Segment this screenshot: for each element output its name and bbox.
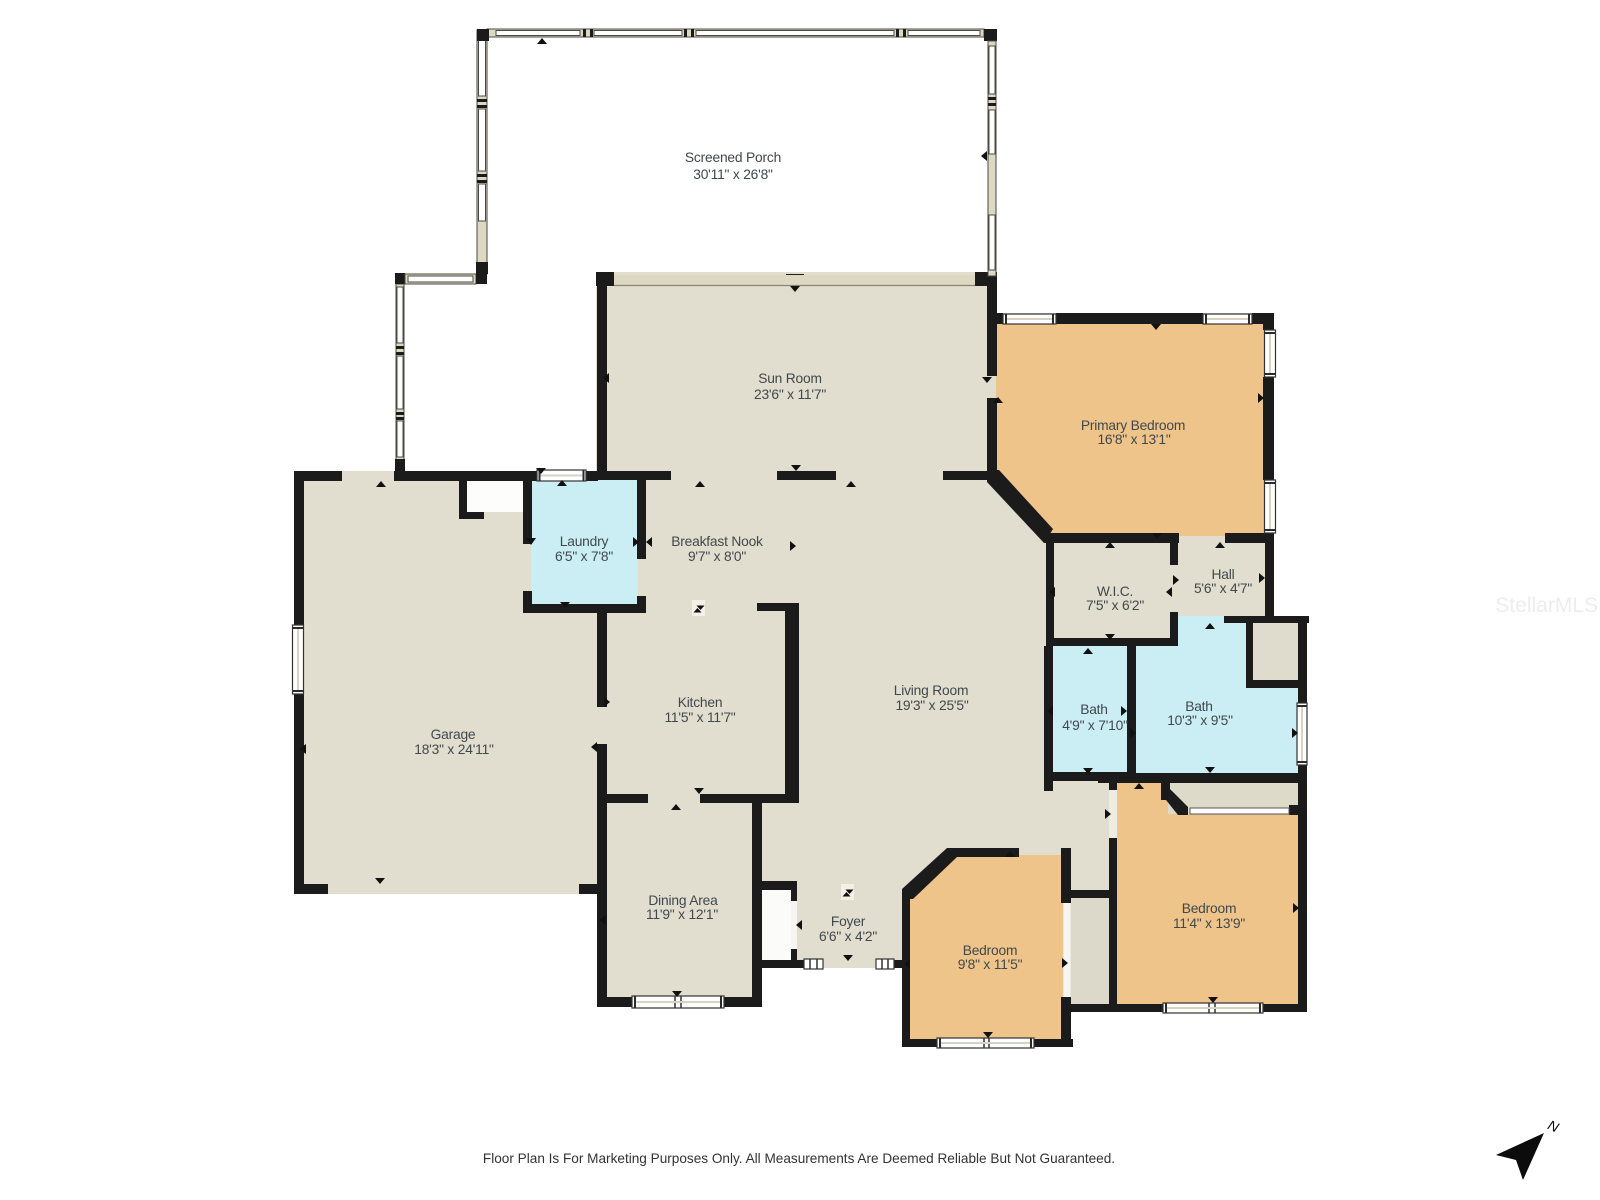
svg-text:23'6" x 11'7": 23'6" x 11'7" [754,387,826,402]
svg-text:Bath: Bath [1185,699,1213,714]
svg-text:Bedroom: Bedroom [963,943,1018,958]
svg-text:18'3" x 24'11": 18'3" x 24'11" [414,742,494,757]
svg-text:Living Room: Living Room [894,683,969,698]
svg-text:Breakfast Nook: Breakfast Nook [671,534,763,549]
svg-text:Sun Room: Sun Room [758,371,822,386]
svg-text:Kitchen: Kitchen [678,695,723,710]
svg-text:5'6" x 4'7": 5'6" x 4'7" [1194,581,1252,596]
svg-text:Screened Porch: Screened Porch [685,150,781,165]
svg-text:Foyer: Foyer [831,914,866,929]
svg-text:Laundry: Laundry [560,534,609,549]
svg-text:11'9" x 12'1": 11'9" x 12'1" [646,907,718,922]
svg-text:Bath: Bath [1080,702,1108,717]
svg-text:16'8" x 13'1": 16'8" x 13'1" [1097,432,1170,447]
svg-text:9'8" x 11'5": 9'8" x 11'5" [958,957,1023,972]
svg-text:11'5" x 11'7": 11'5" x 11'7" [664,710,735,725]
svg-text:W.I.C.: W.I.C. [1097,584,1133,599]
svg-text:Hall: Hall [1212,567,1235,582]
svg-text:9'7" x 8'0": 9'7" x 8'0" [688,549,746,564]
svg-text:4'9" x 7'10": 4'9" x 7'10" [1062,718,1128,733]
svg-text:Primary Bedroom: Primary Bedroom [1081,418,1185,433]
svg-text:19'3" x 25'5": 19'3" x 25'5" [895,698,968,713]
svg-text:10'3" x 9'5": 10'3" x 9'5" [1167,713,1233,728]
svg-text:6'5" x 7'8": 6'5" x 7'8" [555,549,613,564]
svg-text:StellarMLS: StellarMLS [1495,594,1598,617]
svg-text:Bedroom: Bedroom [1182,901,1237,916]
svg-text:7'5" x 6'2": 7'5" x 6'2" [1086,598,1144,613]
svg-text:11'4" x 13'9": 11'4" x 13'9" [1173,916,1245,931]
svg-text:Garage: Garage [431,727,476,742]
svg-text:Floor Plan Is For Marketing Pu: Floor Plan Is For Marketing Purposes Onl… [483,1151,1115,1166]
svg-text:30'11" x 26'8": 30'11" x 26'8" [693,167,773,182]
svg-text:6'6" x 4'2": 6'6" x 4'2" [819,929,877,944]
svg-text:Dining Area: Dining Area [648,893,718,908]
